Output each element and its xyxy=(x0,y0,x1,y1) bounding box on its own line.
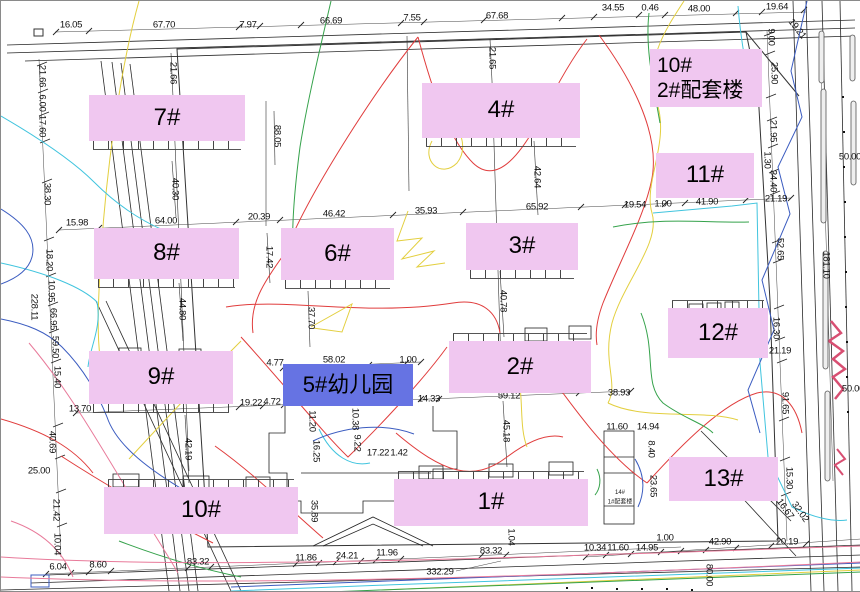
building-label-5[interactable]: 5#幼儿园 xyxy=(283,364,413,406)
dimension-label: 66.69 xyxy=(320,16,342,27)
contour-crimson xyxy=(829,321,845,475)
dimension-label: 34.40 xyxy=(768,170,779,192)
dimension-label: 14.95 xyxy=(636,543,658,554)
dimension-label: 50.00 xyxy=(839,152,860,163)
dimension-label: 7.97 xyxy=(239,20,256,31)
dimension-label: 1.30 xyxy=(762,151,773,168)
dimension-label: 83.32 xyxy=(187,557,209,568)
dimension-label: 11.86 xyxy=(295,553,317,564)
building-label-7[interactable]: 7# xyxy=(89,95,245,141)
dimension-label: 34.55 xyxy=(602,3,624,14)
dimension-label: 88.05 xyxy=(272,125,283,147)
dimension-label: 64.00 xyxy=(155,216,177,227)
dimension-label: 23.65 xyxy=(648,475,659,497)
dimension-label: 8.40 xyxy=(646,440,657,457)
dimension-label: 45.18 xyxy=(501,420,512,442)
dimension-label: 15.40 xyxy=(52,366,63,388)
building-label-10-2[interactable]: 10#2#配套楼 xyxy=(650,49,762,107)
dimension-label: 46.42 xyxy=(323,209,345,220)
dimension-label: 20.19 xyxy=(776,537,798,548)
dimension-label: 67.68 xyxy=(486,11,508,22)
dimension-label: 1.00 xyxy=(656,533,673,544)
small-annotation: 14# xyxy=(615,490,625,496)
dimension-label: 80.00 xyxy=(704,564,715,586)
building-label-text: 4# xyxy=(488,96,515,125)
dimension-label: 21.19 xyxy=(769,346,791,357)
dimension-label: 21.19 xyxy=(765,194,787,205)
dimension-label: 1.00 xyxy=(654,199,671,210)
building-label-text: 5#幼儿园 xyxy=(303,372,393,398)
dimension-label: 35.89 xyxy=(309,500,320,522)
dimension-label: 11.60 xyxy=(606,422,628,433)
dimension-label: 16.25 xyxy=(311,440,322,462)
building-footprint-3 xyxy=(470,270,574,279)
dimension-label: 17.60 xyxy=(37,115,48,137)
dimension-label: 40.30 xyxy=(170,178,181,200)
building-footprint-9 xyxy=(93,404,229,413)
dimension-label: 13.70 xyxy=(69,404,91,415)
dimension-label: 19.22 xyxy=(240,398,262,409)
dimension-label: 21.66 xyxy=(37,65,48,87)
dimension-label: 14.33 xyxy=(418,394,440,405)
dimension-label: 20.39 xyxy=(248,212,270,223)
dimension-label: 42.19 xyxy=(183,438,194,460)
building-label-text: 11# xyxy=(686,161,724,190)
dimension-label: 181.10 xyxy=(821,251,832,278)
building-label-text: 10# xyxy=(657,53,692,78)
building-label-2[interactable]: 2# xyxy=(449,341,591,393)
dimension-label: 38.30 xyxy=(42,183,53,205)
dimension-label: 9.22 xyxy=(352,434,363,451)
site-plan-canvas: 16.0567.707.9766.697.5567.6834.550.4648.… xyxy=(0,0,860,592)
dimension-label: 38.93 xyxy=(608,388,630,399)
dimension-label: 35.93 xyxy=(415,206,437,217)
dimension-label: 24.21 xyxy=(336,551,358,562)
dimension-label: 18.20 xyxy=(44,249,55,271)
dimension-label: 40.69 xyxy=(47,431,58,453)
dimension-label: 16.05 xyxy=(60,20,82,31)
building-label-text: 7# xyxy=(154,104,181,133)
dimension-label: 17.42 xyxy=(264,246,275,268)
dimension-label: 42.64 xyxy=(532,166,543,188)
dimension-label: 15.30 xyxy=(784,467,795,489)
dimension-label: 41.90 xyxy=(696,197,718,208)
dimension-label: 10.04 xyxy=(52,533,63,555)
dimension-label: 10.38 xyxy=(350,408,361,430)
building-label-text: 6# xyxy=(324,240,351,269)
building-label-4[interactable]: 4# xyxy=(422,83,580,138)
dimension-label: 83.32 xyxy=(480,546,502,557)
building-label-8[interactable]: 8# xyxy=(94,228,239,279)
dimension-label: 4.77 xyxy=(266,358,283,369)
dimension-label: 19.54 xyxy=(624,200,646,211)
dimension-label: 67.70 xyxy=(153,20,175,31)
building-label-1[interactable]: 1# xyxy=(394,479,588,526)
building-label-text: 12# xyxy=(698,319,738,348)
dimension-label: 19.64 xyxy=(766,2,788,13)
dimension-label: 8.60 xyxy=(89,560,106,571)
building-label-text: 1# xyxy=(478,488,505,517)
dimension-label: 52.65 xyxy=(775,238,786,260)
dimension-label: 21.65 xyxy=(487,47,498,69)
dimension-label: 11.96 xyxy=(376,548,398,559)
dimension-label: 42.90 xyxy=(709,537,731,548)
building-label-text: 8# xyxy=(153,239,180,268)
dimension-label: 37.70 xyxy=(306,307,317,329)
dimension-label: 0.46 xyxy=(641,3,658,14)
building-label-text: 3# xyxy=(509,232,536,261)
building-footprint-6 xyxy=(285,280,390,289)
dimension-label: 25.00 xyxy=(28,466,50,477)
dimension-label: 10.34 xyxy=(584,543,606,554)
building-label-9[interactable]: 9# xyxy=(89,351,233,404)
building-label-text: 9# xyxy=(148,363,175,392)
building-label-6[interactable]: 6# xyxy=(281,228,394,280)
dimension-label: 10.95 xyxy=(46,280,57,302)
dimension-label: 15.98 xyxy=(66,218,88,229)
dimension-label: 14.94 xyxy=(637,422,659,433)
dimension-label: 228.11 xyxy=(29,294,40,321)
dimension-label: 65.92 xyxy=(526,202,548,213)
building-label-text: 2#配套楼 xyxy=(657,78,743,103)
dimension-label: 48.00 xyxy=(688,4,710,15)
building-label-12[interactable]: 12# xyxy=(668,308,768,358)
building-label-10b[interactable]: 10# xyxy=(104,487,298,534)
building-label-text: 2# xyxy=(507,353,534,382)
dimension-label: 11.20 xyxy=(307,410,318,432)
dimension-label: 21.95 xyxy=(768,120,779,142)
small-annotation: 1#配套楼 xyxy=(608,497,633,506)
dimension-label: 11.60 xyxy=(607,543,629,554)
dimension-label: 21.42 xyxy=(51,499,62,521)
building-label-text: 13# xyxy=(703,465,743,494)
dimension-label: 1.04 xyxy=(506,528,517,545)
building-label-13[interactable]: 13# xyxy=(669,457,778,501)
building-label-text: 10# xyxy=(181,496,221,525)
building-footprint-4 xyxy=(426,138,576,147)
dimension-label: 21.66 xyxy=(168,62,179,84)
dimension-label: 40.78 xyxy=(498,290,509,312)
dimension-label: 6.04 xyxy=(49,562,66,573)
building-footprint-8 xyxy=(98,279,235,288)
dimension-label: 17.22 xyxy=(367,448,389,459)
dimension-label: 66.95 xyxy=(48,308,59,330)
dimension-label: 4.72 xyxy=(263,397,280,408)
building-label-11[interactable]: 11# xyxy=(656,153,754,198)
dimension-label: 91.65 xyxy=(780,392,791,414)
dimension-label: 9.00 xyxy=(766,28,777,45)
building-footprint-7 xyxy=(93,141,241,150)
dimension-label: 6.00 xyxy=(37,94,48,111)
dimension-label: 7.55 xyxy=(403,13,420,24)
dimension-label: 50.00 xyxy=(842,384,860,395)
dimension-label: 332.29 xyxy=(426,567,453,578)
dimension-label: 16.30 xyxy=(771,317,782,339)
building-label-3[interactable]: 3# xyxy=(466,223,578,270)
dimension-label: 59.50 xyxy=(50,336,61,358)
dimension-label: 25.90 xyxy=(769,62,780,84)
dimension-label: 1.42 xyxy=(390,448,407,459)
dimension-label: 44.80 xyxy=(177,298,188,320)
